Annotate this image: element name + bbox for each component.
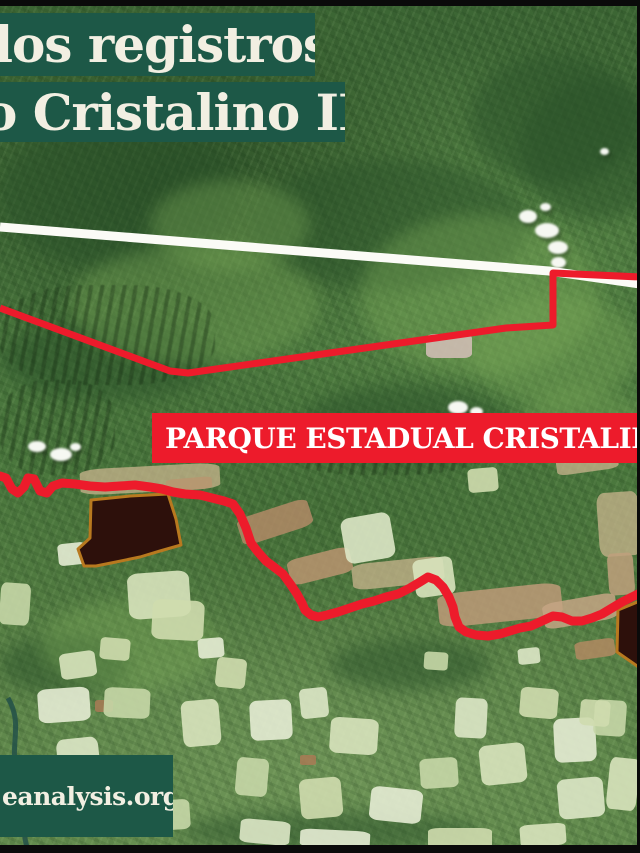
infographic-slide: dos registros o Cristalino II PARQUE EST… — [0, 0, 640, 853]
park-name-label: PARQUE ESTADUAL CRISTALINO — [152, 413, 640, 463]
source-url-text: eanalysis.org/ — [2, 782, 173, 811]
title-line1-box: dos registros — [0, 13, 315, 76]
survey-cut-line — [0, 227, 640, 284]
title-line2-box: o Cristalino II — [0, 82, 345, 142]
deforestation-registry-polygon-west — [78, 494, 181, 566]
title-line1-text: dos registros — [0, 15, 315, 74]
park-name-text: PARQUE ESTADUAL CRISTALINO — [165, 422, 640, 455]
title-line2-text: o Cristalino II — [0, 83, 345, 142]
frame-bar-top — [0, 0, 640, 6]
source-url-box: eanalysis.org/ — [0, 755, 173, 837]
frame-bar-bottom — [0, 845, 640, 853]
park-boundary-north — [0, 273, 640, 373]
